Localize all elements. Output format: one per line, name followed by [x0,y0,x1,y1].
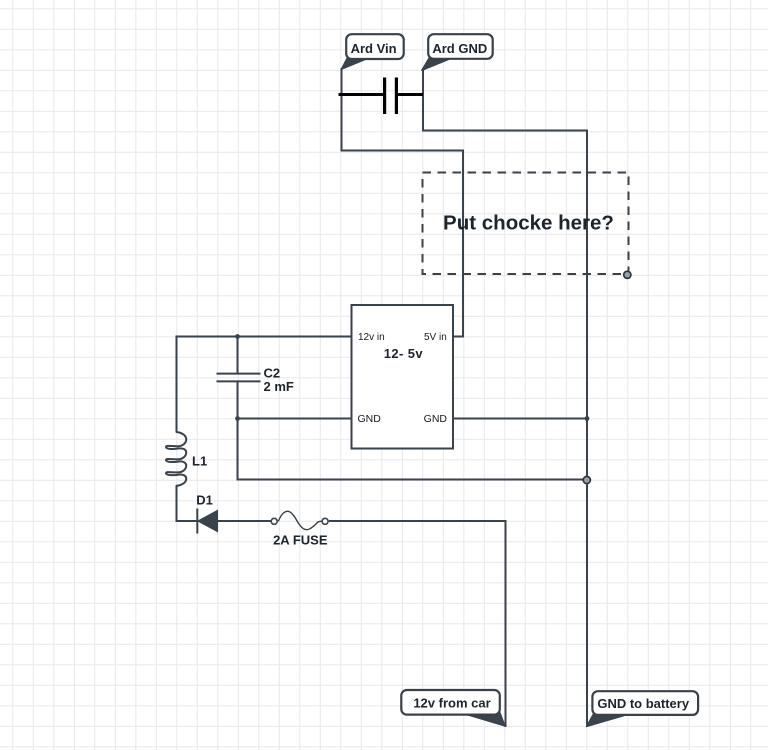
svg-text:12v from car: 12v from car [413,695,490,710]
svg-text:2 mF: 2 mF [264,379,294,394]
svg-text:Ard Vin: Ard Vin [351,41,397,56]
svg-text:GND: GND [358,413,382,425]
svg-text:GND to battery: GND to battery [597,696,690,711]
svg-text:12- 5v: 12- 5v [384,346,424,361]
svg-text:2A FUSE: 2A FUSE [273,533,328,548]
svg-text:L1: L1 [192,454,207,469]
svg-text:5V in: 5V in [424,332,447,343]
svg-text:GND: GND [424,413,448,425]
svg-text:Put chocke here?: Put chocke here? [443,212,614,235]
svg-text:D1: D1 [196,493,213,508]
svg-text:12v in: 12v in [358,332,385,343]
svg-text:Ard GND: Ard GND [432,41,487,56]
